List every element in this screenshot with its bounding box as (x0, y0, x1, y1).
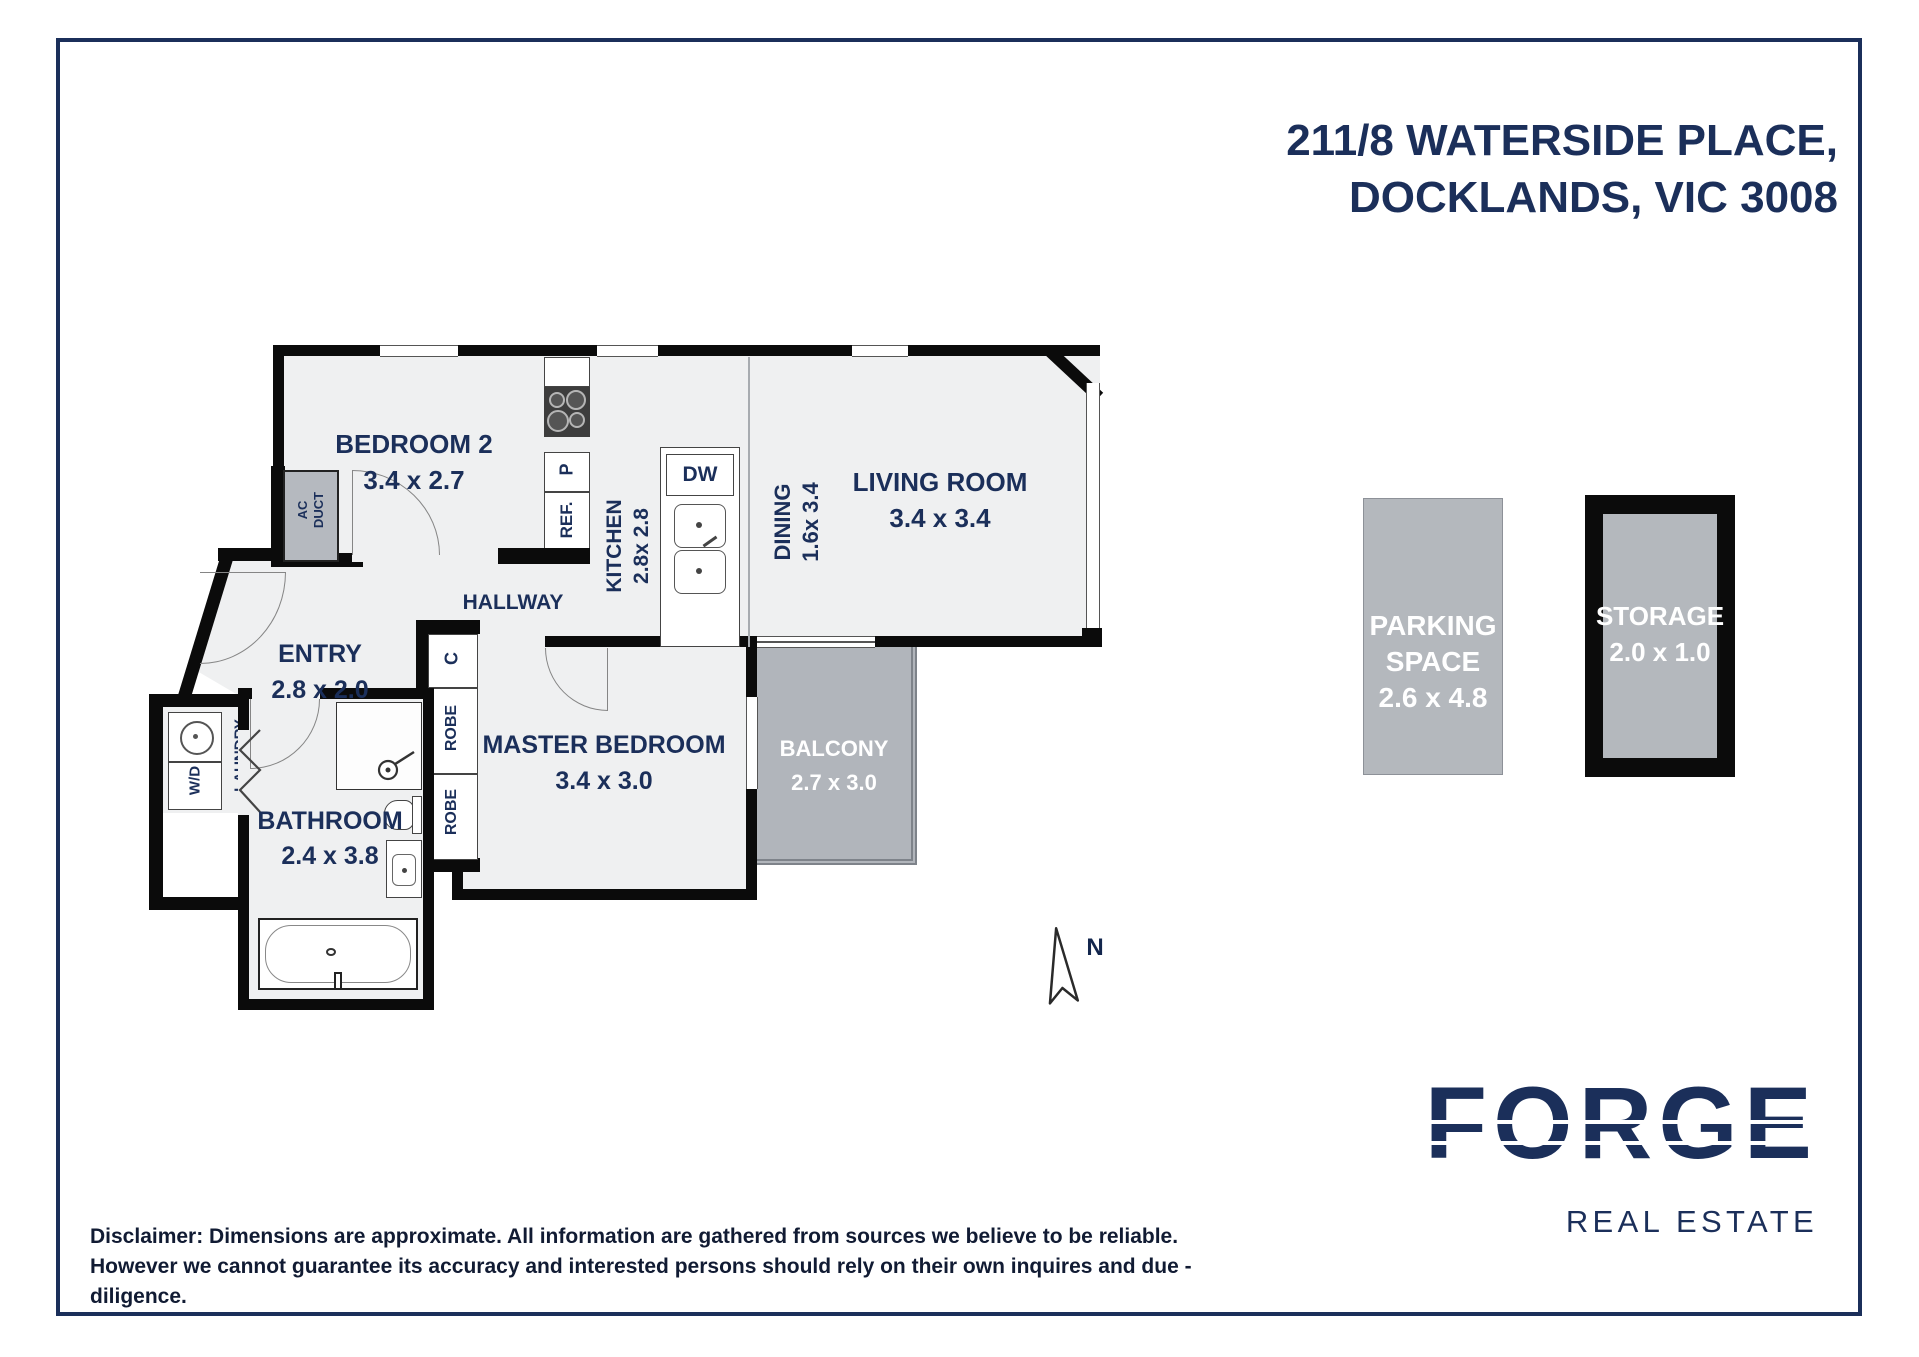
laundry-left-wall (149, 694, 163, 910)
disclaimer-line-1: Disclaimer: Dimensions are approximate. … (90, 1222, 1270, 1252)
kitchen-bench-top (544, 357, 590, 387)
parking-space-label: PARKINGSPACE2.6 x 4.8 (1363, 608, 1503, 716)
address-line-1: 211/8 WATERSIDE PLACE, (1100, 112, 1838, 169)
robe-label-2: ROBE (443, 772, 461, 852)
storage-label: STORAGE2.0 x 1.0 (1585, 598, 1735, 670)
robe-label-1: ROBE (443, 688, 461, 768)
fridge-label: REF. (557, 490, 577, 550)
north-label: N (1080, 934, 1110, 962)
hallway-label: HALLWAY (413, 591, 613, 615)
property-address: 211/8 WATERSIDE PLACE, DOCKLANDS, VIC 30… (1100, 112, 1838, 226)
wd-label: W/D (187, 751, 204, 811)
slider-track-line (757, 641, 875, 643)
burner-icon (569, 412, 585, 428)
bathroom-label: BATHROOM2.4 x 3.8 (230, 804, 430, 874)
living-right-window (1086, 383, 1100, 633)
balcony-label: BALCONY2.7 x 3.0 (757, 732, 911, 800)
cupboard-label: C (442, 639, 463, 679)
disclaimer: Disclaimer: Dimensions are approximate. … (90, 1222, 1270, 1312)
bedroom2-window (380, 345, 458, 357)
entry-label: ENTRY2.8 x 2.0 (220, 636, 420, 708)
sink-drain-2 (696, 568, 702, 574)
disclaimer-line-2: However we cannot guarantee its accuracy… (90, 1252, 1270, 1312)
right-window-post (1082, 628, 1102, 647)
tagline-text: REAL ESTATE (1566, 1204, 1818, 1239)
logo-slit-2 (1360, 1141, 1818, 1145)
kitchen-window (597, 345, 658, 357)
sink-drain-1 (696, 522, 702, 528)
logo-slit-3 (1360, 1162, 1818, 1166)
logo-slit-1 (1360, 1120, 1818, 1124)
bedroom2-label: BEDROOM 23.4 x 2.7 (284, 426, 544, 498)
burner-icon (549, 392, 565, 408)
laundry-trough-drain (193, 734, 198, 739)
shower-head-icon (374, 746, 418, 786)
living-room-label: LIVING ROOM3.4 x 3.4 (810, 464, 1070, 536)
kitchen-south-wall (498, 548, 590, 564)
bathtub-drain (326, 948, 336, 956)
burner-icon (566, 390, 586, 410)
master-door-opening (483, 636, 545, 648)
burner-icon (547, 410, 569, 432)
kitchen-dining-divider (748, 357, 750, 647)
balcony-sliding-door (757, 636, 875, 648)
address-line-2: DOCKLANDS, VIC 3008 (1100, 169, 1838, 226)
robe-column-top-wall (416, 620, 480, 634)
forge-tagline: REAL ESTATE (1320, 1204, 1818, 1240)
bathtub-faucet (334, 972, 342, 990)
master-bedroom-label: MASTER BEDROOM3.4 x 3.0 (464, 727, 744, 799)
north-arrow-icon (1022, 919, 1101, 1012)
living-window (852, 345, 908, 357)
cooktop (544, 387, 590, 437)
dishwasher-label: DW (666, 463, 734, 487)
pantry-label: P (557, 450, 578, 490)
floorplan-page: { "page": { "title_line1": "211/8 WATERS… (0, 0, 1919, 1357)
